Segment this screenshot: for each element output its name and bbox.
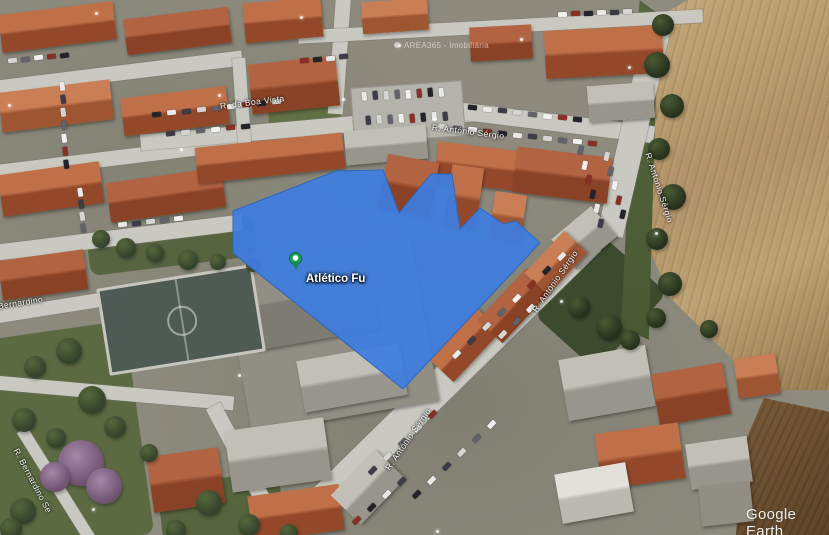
pin-tail-icon [292,262,300,274]
place-marker-label[interactable]: Atlético Fu [306,273,365,285]
google-earth-watermark: Google Earth [746,506,829,535]
satellite-canvas[interactable]: Atlético Fu AREA365 - Imobiliária R. da … [0,0,829,535]
area365-icon [394,42,400,48]
imagery-attribution-label: AREA365 - Imobiliária [404,41,489,50]
parcel-polygon[interactable] [233,170,540,389]
parcel-overlay-svg [0,0,829,535]
place-marker-pin[interactable] [289,252,303,273]
